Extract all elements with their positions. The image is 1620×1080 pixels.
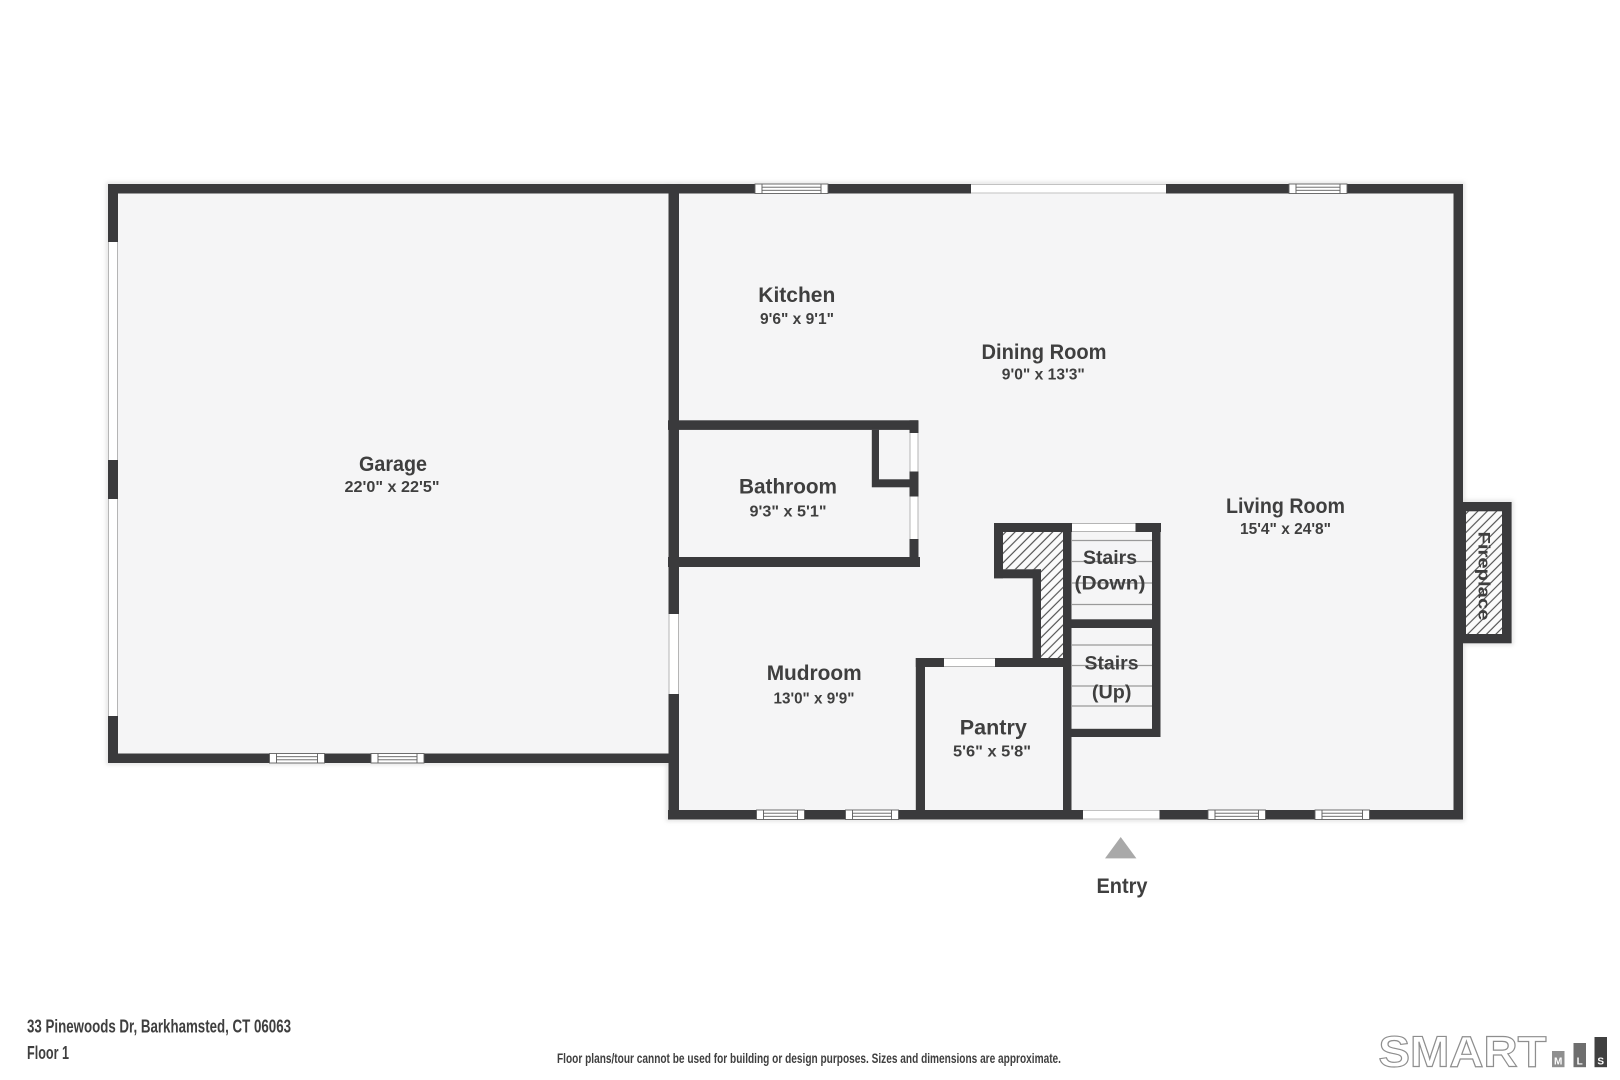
svg-text:22'0" x 22'5": 22'0" x 22'5" xyxy=(345,479,440,496)
svg-text:(Up): (Up) xyxy=(1092,683,1132,704)
svg-text:L: L xyxy=(1577,1057,1583,1068)
svg-text:Mudroom: Mudroom xyxy=(767,662,862,685)
svg-text:S: S xyxy=(1597,1057,1604,1068)
svg-text:(Down): (Down) xyxy=(1075,574,1146,595)
svg-text:Garage: Garage xyxy=(359,453,427,476)
svg-text:33 Pinewoods Dr, Barkhamsted,: 33 Pinewoods Dr, Barkhamsted, CT 06063 xyxy=(27,1017,291,1037)
svg-text:Fireplace: Fireplace xyxy=(1475,532,1494,621)
svg-text:9'0" x 13'3": 9'0" x 13'3" xyxy=(1002,366,1085,383)
svg-text:M: M xyxy=(1554,1057,1562,1068)
svg-text:Entry: Entry xyxy=(1097,875,1148,898)
svg-text:9'3" x 5'1": 9'3" x 5'1" xyxy=(750,504,827,521)
svg-text:15'4" x 24'8": 15'4" x 24'8" xyxy=(1240,521,1331,538)
svg-text:9'6" x 9'1": 9'6" x 9'1" xyxy=(760,311,834,328)
svg-text:Stairs: Stairs xyxy=(1085,654,1139,675)
svg-text:Bathroom: Bathroom xyxy=(739,475,837,498)
svg-text:Living Room: Living Room xyxy=(1226,495,1345,518)
svg-text:Kitchen: Kitchen xyxy=(758,284,835,307)
svg-text:Dining Room: Dining Room xyxy=(982,341,1107,364)
svg-text:Floor 1: Floor 1 xyxy=(27,1043,69,1063)
svg-text:SMART: SMART xyxy=(1379,1028,1547,1077)
svg-text:Stairs: Stairs xyxy=(1083,548,1137,569)
svg-text:13'0" x 9'9": 13'0" x 9'9" xyxy=(774,691,855,708)
svg-text:Pantry: Pantry xyxy=(960,716,1027,739)
svg-text:Floor plans/tour cannot be use: Floor plans/tour cannot be used for buil… xyxy=(557,1051,1061,1066)
svg-text:5'6" x 5'8": 5'6" x 5'8" xyxy=(953,743,1031,760)
